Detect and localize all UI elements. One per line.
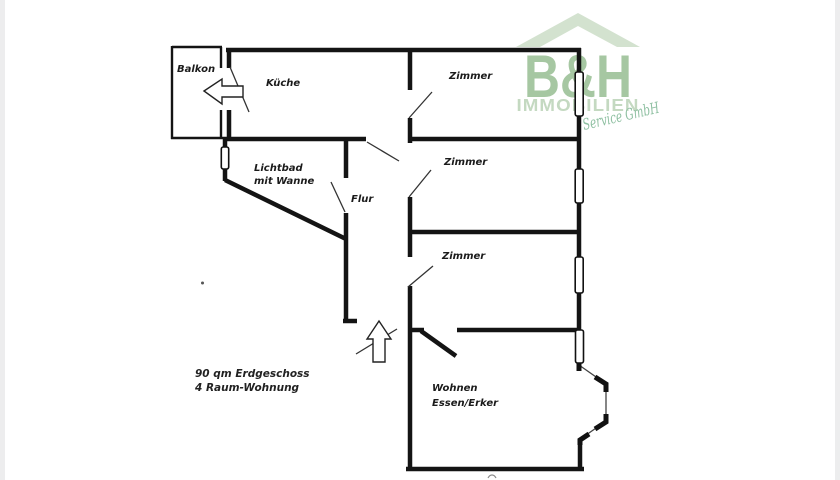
bay-window-glass — [579, 365, 606, 440]
window-room-bottom — [575, 257, 583, 293]
annotation-line1: 90 qm Erdgeschoss — [195, 368, 310, 380]
bay-window-posts — [579, 359, 606, 445]
bath-door-swing — [331, 182, 345, 212]
room-label-zimmer-top: Zimmer — [448, 71, 493, 82]
entrance-arrow-icon — [367, 321, 391, 362]
floorplan-page: B&H IMMOBILIEN Service GmbH — [0, 0, 840, 480]
window-living — [576, 330, 584, 363]
plan-annotation: 90 qm Erdgeschoss 4 Raum-Wohnung — [194, 368, 310, 394]
logo-roof-icon — [516, 13, 640, 47]
cropped-text-fragment — [488, 475, 496, 478]
room-label-zimmer-bottom: Zimmer — [441, 251, 486, 262]
company-logo: B&H IMMOBILIEN Service GmbH — [516, 13, 661, 134]
room-label-lichtbad-line1: Lichtbad — [254, 163, 304, 174]
windows — [221, 72, 583, 363]
door-swings — [230, 67, 433, 354]
kitchen-room-door-swing — [409, 92, 432, 118]
room-label-kueche: Küche — [266, 78, 300, 89]
stray-dot-mark — [201, 282, 204, 285]
window-room-mid — [575, 169, 583, 203]
bay-window — [579, 359, 606, 445]
room-label-lichtbad-line2: mit Wanne — [254, 176, 314, 187]
room-label-wohnen-line1: Wohnen — [432, 383, 478, 394]
room-label-flur: Flur — [351, 194, 374, 205]
window-room-top — [575, 72, 583, 116]
annotation-line2: 4 Raum-Wohnung — [194, 382, 300, 394]
hall-room2-door-swing — [409, 170, 431, 197]
hall-room3-door-swing — [408, 266, 433, 287]
floorplan-canvas: B&H IMMOBILIEN Service GmbH — [0, 0, 840, 480]
room-label-wohnen-line2: Essen/Erker — [432, 398, 499, 409]
kitchen-hall-door-swing — [367, 142, 399, 161]
room-label-zimmer-mid: Zimmer — [443, 157, 488, 168]
room-label-balkon: Balkon — [177, 64, 215, 75]
window-bath — [221, 147, 228, 169]
